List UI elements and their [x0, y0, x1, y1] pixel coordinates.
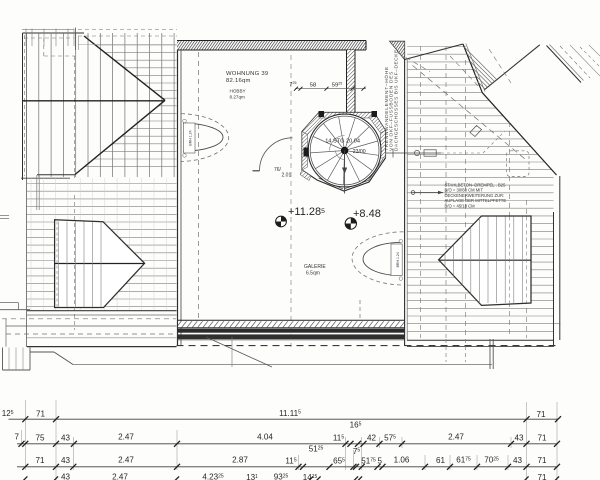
- svg-text:5: 5: [378, 457, 383, 466]
- svg-text:14 STG 20.04: 14 STG 20.04: [325, 139, 360, 145]
- svg-text:58: 58: [310, 83, 316, 89]
- svg-text:2.47: 2.47: [118, 433, 134, 442]
- svg-text:9325: 9325: [274, 473, 289, 480]
- svg-text:71: 71: [537, 434, 547, 443]
- svg-text:76/: 76/: [274, 167, 282, 173]
- svg-text:75: 75: [35, 434, 45, 443]
- svg-text:4.04: 4.04: [257, 433, 273, 442]
- svg-text:1415: 1415: [303, 473, 318, 480]
- svg-text:2.47: 2.47: [118, 456, 134, 465]
- svg-text:71: 71: [537, 456, 547, 465]
- svg-text:6.5qm: 6.5qm: [306, 271, 320, 277]
- svg-text:82.16qm: 82.16qm: [226, 78, 251, 84]
- svg-text:GALERIE: GALERIE: [304, 264, 326, 270]
- svg-text:B/O = 45/18 CM: B/O = 45/18 CM: [445, 203, 476, 208]
- svg-text:42: 42: [367, 434, 377, 443]
- svg-text:DACHGESCHOSSES BIS UKF–DECKE: DACHGESCHOSSES BIS UKF–DECKE: [393, 49, 399, 151]
- svg-text:+11.285: +11.285: [288, 206, 325, 218]
- svg-text:43: 43: [61, 434, 71, 443]
- svg-text:71: 71: [537, 473, 547, 480]
- svg-text:131: 131: [246, 473, 258, 480]
- svg-text:71: 71: [36, 410, 46, 419]
- svg-text:11.115: 11.115: [279, 409, 301, 418]
- svg-text:71: 71: [536, 410, 546, 419]
- svg-text:43: 43: [61, 456, 71, 465]
- svg-text:8.27qm: 8.27qm: [230, 95, 245, 100]
- svg-text:4.2325: 4.2325: [202, 473, 224, 480]
- svg-text:2.47: 2.47: [448, 433, 464, 442]
- svg-text:HOBBY: HOBBY: [230, 89, 246, 94]
- svg-text:43: 43: [61, 473, 71, 480]
- svg-text:2.87: 2.87: [232, 456, 248, 465]
- svg-text:71: 71: [35, 456, 45, 465]
- svg-text:23/00: 23/00: [353, 149, 366, 155]
- svg-text:43: 43: [514, 434, 524, 443]
- svg-text:7: 7: [14, 433, 19, 442]
- svg-text:WOHNUNG 39: WOHNUNG 39: [226, 71, 268, 77]
- svg-text:BRH 1.24: BRH 1.24: [396, 252, 400, 267]
- svg-text:1.06: 1.06: [394, 456, 410, 465]
- svg-text:43: 43: [513, 456, 523, 465]
- svg-text:+8.48: +8.48: [353, 208, 381, 220]
- svg-text:BRH 1.24: BRH 1.24: [189, 130, 193, 145]
- svg-text:2.47: 2.47: [112, 473, 128, 480]
- svg-text:61: 61: [436, 456, 446, 465]
- svg-text:2.01: 2.01: [282, 172, 292, 178]
